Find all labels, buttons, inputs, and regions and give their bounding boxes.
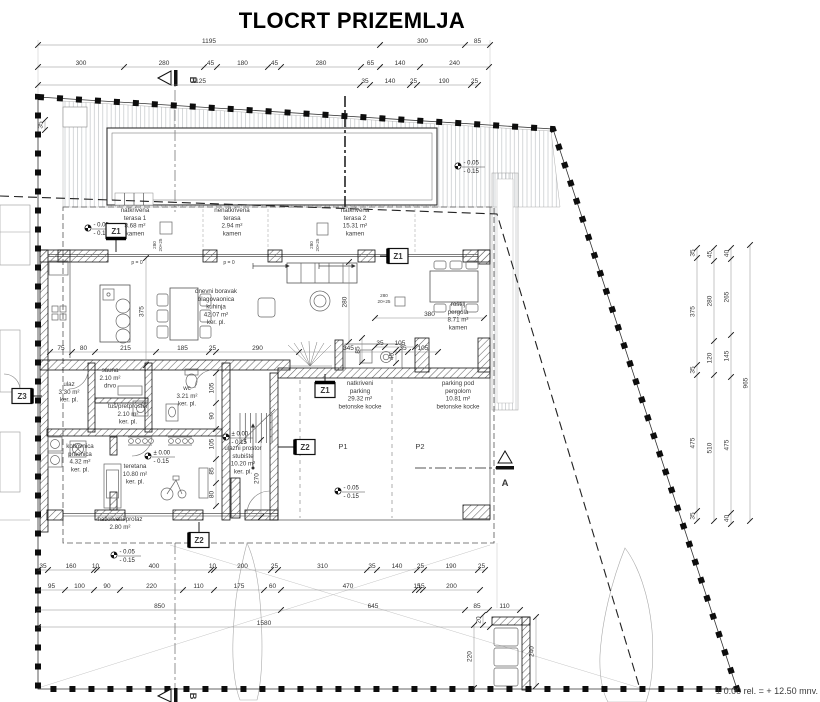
window-tag: 28020+25 (152, 238, 163, 251)
opening-tag-label: Z1 (393, 252, 403, 261)
dim-label: 90 (103, 583, 111, 590)
dim-label: 280 (342, 296, 349, 307)
dim-label: 290 (252, 345, 263, 352)
dim-label: 280 (159, 60, 170, 67)
parking-space-p1: P1 (338, 442, 347, 451)
dim-label: 280 (316, 60, 327, 67)
dim-label: 35 (690, 366, 697, 374)
dim-label: 45 (207, 60, 215, 67)
dim-label: 160 (66, 563, 77, 570)
dimension-chain: 45 (389, 347, 399, 366)
dim-label: 400 (149, 563, 160, 570)
dim-label: 110 (193, 583, 204, 590)
dim-label: 95 (48, 583, 56, 590)
dim-label: 10 (209, 563, 217, 570)
dim-label: 25 (410, 78, 418, 85)
dim-label: 220 (467, 651, 474, 662)
dim-label: 10 (92, 563, 100, 570)
slope-note: p = 0 (223, 260, 234, 266)
dim-label: 1580 (257, 620, 272, 627)
section-letter-b-bottom: B (187, 693, 198, 700)
dimension-chain: 119530085 (35, 38, 493, 48)
dim-label: 25 (478, 563, 486, 570)
section-marker-b-top (158, 70, 178, 86)
dim-label: 45 (271, 60, 279, 67)
armchair (258, 298, 275, 317)
dim-label: 240 (449, 60, 460, 67)
dim-label: 85 (355, 346, 362, 354)
dimension-chain: 220 (467, 622, 477, 691)
kitchen-island (100, 285, 130, 342)
dim-label: 35 (368, 563, 376, 570)
dim-label: 190 (439, 78, 450, 85)
dimension-chain: 105901058580 (209, 370, 219, 509)
dim-label: 965 (743, 377, 750, 388)
dim-label: 510 (707, 442, 714, 453)
level-value: - 0.05 (120, 550, 136, 556)
dim-label: 35 (690, 249, 697, 257)
dim-label: 35 (361, 78, 369, 85)
dimension-chain: 300280451804528065140240 (35, 60, 492, 70)
dimension-chain: 1580 (35, 620, 493, 630)
dim-label: 345 (343, 345, 354, 352)
level-value: - 0.15 (120, 558, 136, 564)
section-letter-b-top: B (187, 77, 198, 84)
dim-label: 105 (209, 382, 216, 393)
dim-label: 35 (376, 340, 384, 347)
room-label-pergola: roštiljpergola8.71 m²kamen (448, 301, 469, 331)
parking-space-p2: P2 (415, 442, 424, 451)
trees (233, 543, 653, 702)
dim-label: 200 (237, 563, 248, 570)
level-value: ± 0.00 (232, 432, 249, 438)
room-label-parking: natkriveniparking29.32 m²betonske kocke (339, 380, 383, 410)
room-label-tus: tuš/pretprostor2.10 m²ker. pl. (108, 403, 148, 426)
dim-label: 35 (690, 512, 697, 520)
dim-label: 110 (499, 603, 510, 610)
room-label-terasa2: natkrivenaterasa 215.31 m²kamen (341, 207, 370, 237)
opening-tag-z1: Z1 (380, 249, 408, 264)
dim-label: 475 (690, 437, 697, 448)
outdoor-table (430, 271, 478, 302)
washbasin (166, 404, 178, 421)
dim-label: 190 (446, 563, 457, 570)
dimension-chain: 4026514547540 (724, 245, 734, 527)
room-label-terasa: nenatkrivenaterasa2.94 m²kamen (214, 207, 250, 237)
dimension-chain: 20 (476, 612, 486, 628)
opening-tag-z1: Z1 (106, 224, 126, 253)
window-tag: 28020+25 (309, 238, 320, 251)
dim-label: 35 (38, 121, 45, 129)
dimension-chain: 35160104001020025310351402519025 (35, 563, 488, 573)
dim-label: 280 (707, 295, 714, 306)
dim-label: 105 (418, 345, 429, 352)
dim-label: 85 (209, 467, 216, 475)
dim-label: 35 (39, 563, 47, 570)
dim-label: 45 (389, 353, 396, 361)
dim-label: 80 (80, 345, 88, 352)
washing-machine (48, 437, 62, 451)
dim-label: 1195 (202, 38, 216, 45)
room-label-terasa1: natkrivenaterasa 18.68 m²kamen (121, 207, 150, 237)
room-label-parking2: parking podpergolom10.81 m²betonske kock… (437, 380, 481, 410)
dim-label: 265 (724, 291, 731, 302)
dim-label: 25 (471, 78, 479, 85)
sauna-bench (118, 386, 142, 395)
opening-tag-label: Z2 (300, 443, 310, 452)
dim-label: 850 (154, 603, 165, 610)
dimension-chain: 35 (38, 117, 48, 133)
room-label-teretana: teretana10.80 m²ker. pl. (123, 463, 147, 486)
floor-plan-svg: 1195300853002804518045280651402401125351… (0, 0, 820, 702)
opening-tag-label: Z1 (111, 227, 121, 236)
pool (107, 128, 437, 205)
gym-bench (199, 468, 208, 498)
dim-label: 180 (237, 60, 248, 67)
dim-label: 60 (269, 583, 277, 590)
level-value: - 0.15 (464, 169, 480, 175)
opening-tag-z2: Z2 (189, 522, 209, 548)
dim-label: 105 (209, 438, 216, 449)
level-value: - 0.05 (344, 486, 360, 492)
dimension-chain: 1125351402519025 (35, 78, 481, 88)
dim-label: 375 (690, 306, 697, 317)
dim-label: 100 (74, 583, 85, 590)
opening-tag-label: Z2 (194, 536, 204, 545)
fan-steps (288, 341, 332, 366)
dim-label: 240 (529, 646, 536, 657)
dim-label: 40 (724, 250, 731, 258)
floor-plan-page: TLOCRT PRIZEMLJA (0, 0, 820, 702)
dim-label: 380 (424, 311, 435, 318)
dim-label: 300 (76, 60, 87, 67)
dining-table (170, 288, 198, 340)
level-value: - 0.05 (464, 161, 480, 167)
slope-note: p = 0 (131, 260, 142, 266)
dim-label: 85 (474, 38, 482, 45)
dim-label: 145 (724, 350, 731, 361)
dimension-chain: 375 (139, 255, 149, 368)
level-marker: - 0.05- 0.15 (111, 550, 141, 565)
dimension-chain: 35105 (372, 340, 418, 350)
dim-label: 25 (271, 563, 279, 570)
level-value: - 0.15 (154, 459, 170, 465)
dim-label: 200 (446, 583, 457, 590)
dim-label: 65 (367, 60, 375, 67)
room-label-ulaz: ulaz3.30 m²ker. pl. (59, 381, 80, 404)
room-label-prolaz: natkriveni prolaz2.80 m² (97, 516, 142, 531)
dim-label: 185 (177, 345, 188, 352)
section-marker-a (496, 451, 514, 470)
dim-label: 140 (392, 563, 403, 570)
dim-label: 645 (368, 603, 379, 610)
section-letter-a: A (502, 478, 509, 489)
level-value: ± 0.00 (154, 451, 171, 457)
room-label-wc: wc3.21 m²ker. pl. (177, 385, 198, 408)
room-label-dnevni: dnevni boravakblagovaonicakuhinja42.07 m… (195, 288, 238, 326)
dim-label: 45 (707, 251, 714, 259)
dim-label: 175 (234, 583, 245, 590)
dim-label: 300 (417, 38, 428, 45)
opening-tag-z2: Z2 (278, 440, 315, 455)
dim-label: 75 (57, 345, 65, 352)
dim-label: 475 (724, 439, 731, 450)
dim-label: 80 (209, 491, 216, 499)
dim-label: 270 (254, 473, 261, 484)
datum-note: ± 0.00 rel. = + 12.50 mnv. (716, 686, 818, 696)
opening-tag-label: Z1 (320, 386, 330, 395)
garbage-enclosure (492, 617, 530, 690)
dim-label: 105 (395, 340, 406, 347)
dim-label: 375 (139, 306, 146, 317)
opening-tag-label: Z3 (17, 392, 27, 401)
dim-label: 140 (385, 78, 396, 85)
dim-label: 15 (417, 583, 425, 590)
level-marker: ± 0.00- 0.15 (145, 451, 175, 466)
gym-equipment (104, 437, 208, 508)
dim-label: 40 (724, 515, 731, 523)
dim-label: 220 (146, 583, 157, 590)
east-path (492, 173, 518, 410)
dim-label: 120 (707, 352, 714, 363)
dimension-chain: 85064585110 (35, 603, 523, 613)
dim-label: 140 (395, 60, 406, 67)
level-marker: - 0.05- 0.15 (335, 486, 365, 501)
dimension-chain: 45280120510 (707, 245, 717, 524)
dimension-chain: 965 (743, 242, 753, 524)
dim-label: 85 (473, 603, 481, 610)
dim-label: 25 (209, 345, 217, 352)
dim-label: 90 (209, 412, 216, 420)
neighbor-building (0, 205, 30, 520)
dim-label: 25 (417, 563, 425, 570)
dim-label: 215 (120, 345, 131, 352)
coffee-table (310, 291, 330, 311)
dim-label: 310 (317, 563, 328, 570)
room-label-sauna: sauna2.10 m²drvo (100, 367, 121, 390)
pool-deck (63, 101, 560, 207)
window-tag: 28020+25 (378, 293, 391, 304)
dimension-chain: 353753547535 (690, 245, 700, 524)
dim-label: 470 (343, 583, 354, 590)
dim-label: 20 (476, 616, 483, 624)
level-value: - 0.15 (344, 494, 360, 500)
room-label-kotlovnica: kotlovnicapraonica4.32 m²ker. pl. (66, 443, 94, 473)
